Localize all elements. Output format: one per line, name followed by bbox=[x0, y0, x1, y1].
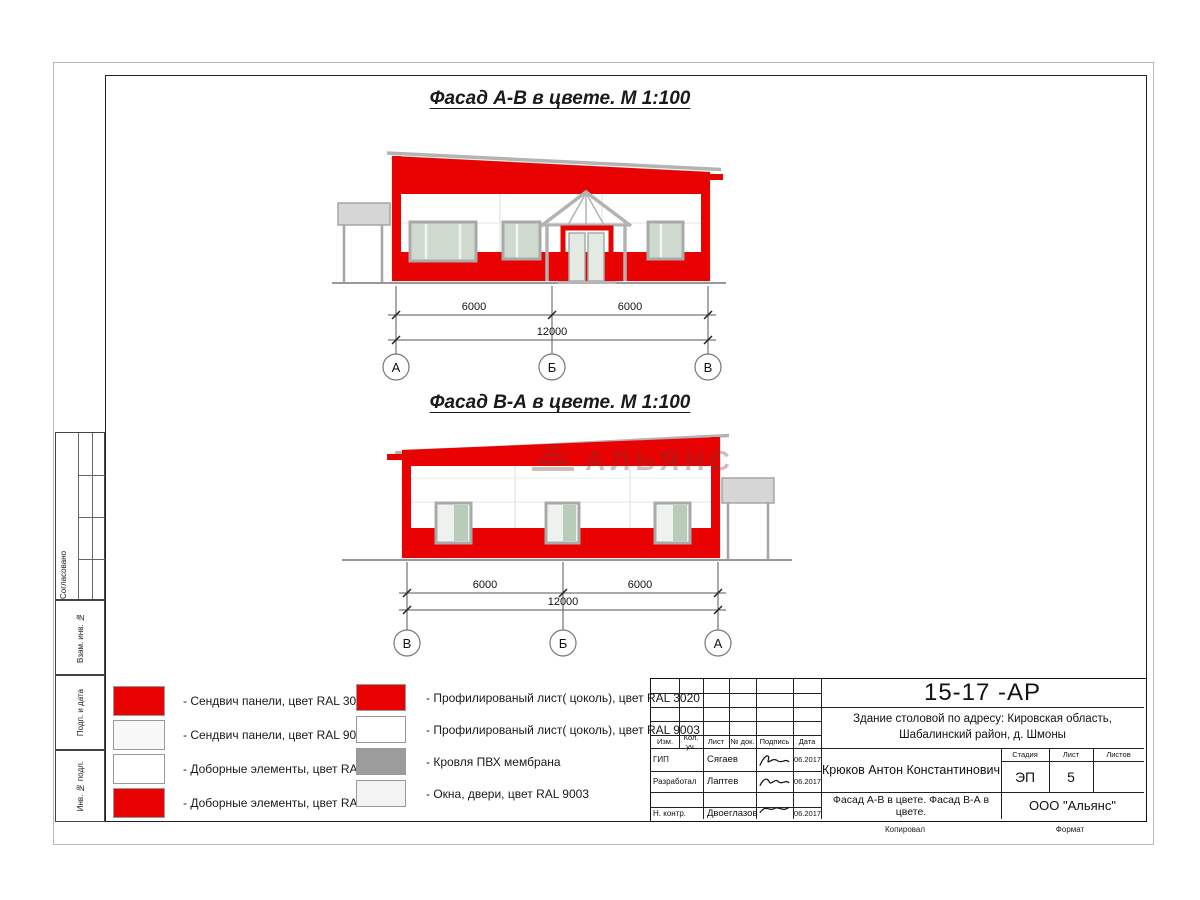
legend-label: - Сендвич панели, цвет RAL 3020 bbox=[183, 694, 370, 708]
dimension-label: 6000 bbox=[618, 301, 642, 313]
watermark-text: АЛЬЯНС bbox=[585, 445, 735, 476]
company-name: ООО "Альянс" bbox=[1001, 792, 1144, 819]
gutter-bracket bbox=[387, 454, 402, 460]
chief-name: Крюков Антон Константинович bbox=[821, 748, 1001, 792]
date-razrabotal: 06.2017 bbox=[794, 771, 821, 792]
signature bbox=[757, 772, 791, 792]
legend-left-column: - Сендвич панели, цвет RAL 3020 - Сендви… bbox=[113, 686, 394, 818]
window-icon bbox=[410, 222, 476, 261]
sheets-value bbox=[1093, 761, 1144, 792]
facade-ab-canopy bbox=[338, 203, 390, 283]
axis-label: Б bbox=[559, 636, 568, 651]
color-swatch bbox=[356, 780, 406, 807]
document-number: 15-17 -АР bbox=[821, 679, 1144, 707]
project-name-line1: Здание столовой по адресу: Кировская обл… bbox=[853, 712, 1112, 728]
sheet-content-title: Фасад А-В в цвете. Фасад В-А в цвете. bbox=[821, 792, 1001, 819]
legend-item: - Профилированый лист( цоколь), цвет RAL… bbox=[356, 716, 700, 743]
dimension-label: 6000 bbox=[462, 301, 486, 313]
side-stamp-approve: Согласовано bbox=[55, 432, 105, 600]
door-leaf bbox=[569, 233, 585, 281]
signature bbox=[757, 750, 791, 770]
stage-label: Стадия bbox=[1001, 748, 1049, 761]
legend-label: - Сендвич панели, цвет RAL 9003 bbox=[183, 728, 370, 742]
legend-right-column: - Профилированый лист( цоколь), цвет RAL… bbox=[356, 684, 700, 807]
drawing-sheet: { "colors": { "ral3020": "#e80202", "ral… bbox=[0, 0, 1200, 900]
sheets-label: Листов bbox=[1093, 748, 1144, 761]
legend-item: - Кровля ПВХ мембрана bbox=[356, 748, 700, 775]
name-razrabotal: Лаптев bbox=[705, 771, 755, 792]
col-kol-uch: Кол. уч. bbox=[679, 735, 703, 748]
facade-ba-dimensions: 6000 6000 12000 В Б А bbox=[394, 562, 731, 656]
side-stamp-label: Инв. № подл. bbox=[76, 761, 85, 811]
signature bbox=[757, 800, 791, 820]
facade-ba-drawing: АЛЬЯНС 6000 6000 12000 В Б А bbox=[337, 428, 802, 663]
legend-item: - Профилированый лист( цоколь), цвет RAL… bbox=[356, 684, 700, 711]
format-label: Формат bbox=[1020, 825, 1120, 834]
dimension-label: 12000 bbox=[537, 326, 568, 338]
side-stamp-label: Взам. инв. № bbox=[76, 613, 85, 663]
side-stamp-label: Согласовано bbox=[59, 433, 68, 599]
side-stamp-vzam: Взам. инв. № bbox=[55, 600, 105, 675]
legend-item: - Доборные элементы, цвет RAL 9003 bbox=[113, 754, 394, 784]
axis-label: В bbox=[704, 360, 713, 375]
role-gip: ГИП bbox=[651, 748, 703, 771]
project-name-line2: Шабалинский район, д. Шмоны bbox=[899, 728, 1066, 744]
door-leaf bbox=[588, 233, 604, 281]
copied-label: Копировал bbox=[850, 825, 960, 834]
color-swatch bbox=[356, 684, 406, 711]
date-nkontr: 06.2017 bbox=[794, 807, 821, 819]
legend-item: - Окна, двери, цвет RAL 9003 bbox=[356, 780, 700, 807]
side-stamp-label: Подп. и дата bbox=[76, 689, 85, 736]
col-podpis: Подпись bbox=[756, 735, 793, 748]
facade-ab-title: Фасад А-В в цвете. М 1:100 bbox=[330, 88, 790, 110]
dimension-label: 6000 bbox=[473, 579, 497, 591]
sheet-label: Лист bbox=[1049, 748, 1093, 761]
role-razrabotal: Разработал bbox=[651, 771, 703, 792]
color-swatch bbox=[113, 788, 165, 818]
window-icon bbox=[503, 222, 540, 259]
axis-label: А bbox=[392, 360, 401, 375]
legend-item: - Сендвич панели, цвет RAL 9003 bbox=[113, 720, 394, 750]
project-name: Здание столовой по адресу: Кировская обл… bbox=[821, 707, 1144, 748]
legend-label: - Окна, двери, цвет RAL 9003 bbox=[426, 787, 589, 801]
legend-label: - Кровля ПВХ мембрана bbox=[426, 755, 561, 769]
sheet-value: 5 bbox=[1049, 761, 1093, 792]
dimension-label: 12000 bbox=[548, 596, 579, 608]
color-swatch bbox=[356, 748, 406, 775]
stage-value: ЭП bbox=[1001, 761, 1049, 792]
side-stamp-podp: Подп. и дата bbox=[55, 675, 105, 750]
facade-ab-dimensions: 6000 6000 12000 А Б В bbox=[383, 286, 721, 380]
name-nkontr: Двоеглазов bbox=[705, 807, 755, 819]
col-data: Дата bbox=[793, 735, 821, 748]
col-list: Лист bbox=[703, 735, 729, 748]
color-swatch bbox=[356, 716, 406, 743]
name-gip: Сягаев bbox=[705, 748, 755, 771]
side-stamp-inv: Инв. № подл. bbox=[55, 750, 105, 822]
title-block: Изм. Кол. уч. Лист № док. Подпись Дата Г… bbox=[650, 678, 1147, 822]
window-icon bbox=[648, 222, 683, 259]
role-nkontr: Н. контр. bbox=[651, 807, 703, 819]
facade-ab-building bbox=[332, 153, 726, 283]
color-swatch bbox=[113, 720, 165, 750]
color-swatch bbox=[113, 686, 165, 716]
date-gip: 06.2017 bbox=[794, 748, 821, 771]
axis-label: Б bbox=[548, 360, 557, 375]
gutter-bracket bbox=[710, 174, 723, 180]
legend-item: - Доборные элементы, цвет RAL 3020 bbox=[113, 788, 394, 818]
facade-ab-drawing: 6000 6000 12000 А Б В bbox=[330, 148, 730, 383]
facade-ba-title: Фасад В-А в цвете. М 1:100 bbox=[330, 392, 790, 414]
legend-item: - Сендвич панели, цвет RAL 3020 bbox=[113, 686, 394, 716]
dimension-label: 6000 bbox=[628, 579, 652, 591]
color-swatch bbox=[113, 754, 165, 784]
col-izm: Изм. bbox=[651, 735, 679, 748]
axis-label: В bbox=[403, 636, 412, 651]
col-ndok: № док. bbox=[729, 735, 756, 748]
axis-label: А bbox=[714, 636, 723, 651]
facade-ba-canopy bbox=[722, 478, 774, 560]
